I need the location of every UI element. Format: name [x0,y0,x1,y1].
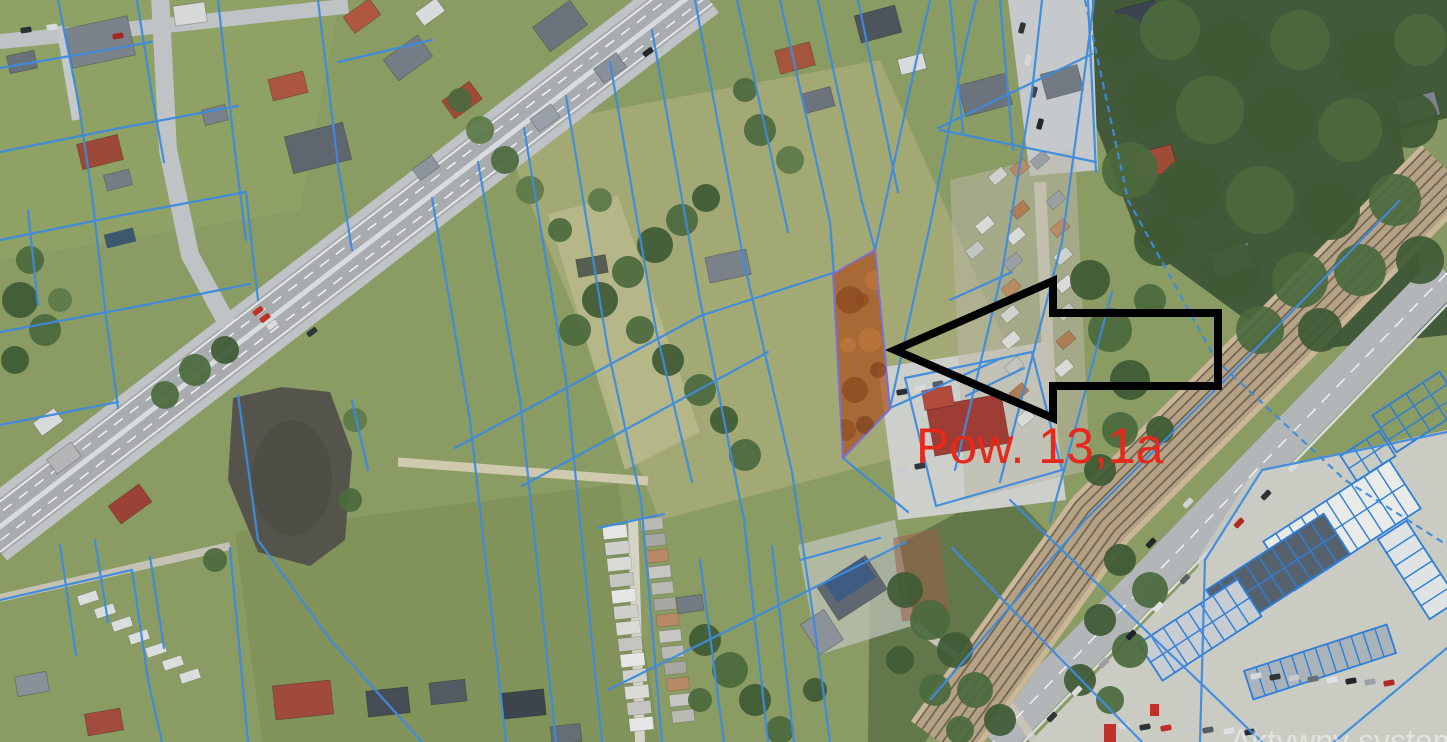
area-label: Pow. 13,1a [916,418,1164,474]
tree [776,146,804,174]
tree [886,646,914,674]
tree [612,256,644,288]
tree [48,288,72,312]
tree [984,704,1016,736]
garage [616,620,641,635]
map-imagery-layer [0,0,1447,742]
map-watermark: Aktywny system W [1230,723,1447,742]
tree [712,652,748,688]
tree [1270,10,1330,70]
building [366,687,410,717]
tree [211,336,239,364]
tree [887,572,923,608]
garage [609,572,634,587]
tree [29,314,61,346]
map-viewport[interactable]: Pow. 13,1a Aktywny system W [0,0,1447,742]
tree [688,688,712,712]
tree [626,316,654,344]
tree [466,116,494,144]
red-roof-mark [1104,724,1116,742]
tree [1336,26,1404,94]
tree [1300,180,1360,240]
tree [1084,604,1116,636]
building [676,594,704,613]
garage [618,636,643,651]
tree [733,78,757,102]
tree [1158,158,1222,222]
building [272,680,333,720]
garage [651,581,674,595]
garage [648,565,671,579]
tree [1070,260,1110,300]
garage [605,540,630,555]
tree [1140,0,1200,60]
tree [491,146,519,174]
tree [338,488,362,512]
tree [1394,14,1446,66]
tree [689,624,721,656]
garage [624,684,649,699]
tree [1298,308,1342,352]
tree [1110,360,1150,400]
tree [1176,76,1244,144]
tree [1382,92,1438,148]
building [429,679,467,705]
building [502,689,546,719]
tree [652,344,684,376]
tree [1132,572,1168,608]
tree [203,548,227,572]
tree [910,600,950,640]
garage [643,533,666,547]
garage [613,604,638,619]
tree [1102,142,1158,198]
tree [1,346,29,374]
tree [1236,306,1284,354]
garage [672,709,695,723]
tree [548,218,572,242]
tree [1334,244,1386,296]
tree [1369,174,1421,226]
tree [179,354,211,386]
tree [1226,166,1294,234]
tree [2,282,38,318]
garage [611,588,636,603]
tree [1318,98,1382,162]
garage [629,716,654,731]
garage [656,613,679,627]
tree [559,314,591,346]
garage [646,549,669,563]
tree [744,114,776,146]
tree [1104,544,1136,576]
garage [620,652,645,667]
tree [1120,70,1180,130]
garage [653,597,676,611]
tree [1200,240,1260,300]
tree [919,674,951,706]
tree [692,184,720,212]
tree [957,672,993,708]
tree [666,204,698,236]
tree [1244,84,1316,156]
garage [659,629,682,643]
tree [1094,14,1146,66]
building [173,2,207,26]
tree [739,684,771,716]
garage [666,677,689,691]
tree [516,176,544,204]
garage [627,700,652,715]
tree [16,246,44,274]
garage [607,556,632,571]
tree [1396,236,1444,284]
tree [937,632,973,668]
aerial-map[interactable]: Pow. 13,1a Aktywny system W [0,0,1447,742]
tree [151,381,179,409]
tree [448,88,472,112]
tree [1272,252,1328,308]
red-roof-mark [1150,704,1159,716]
garage [664,661,687,675]
tree [588,188,612,212]
tree [1196,16,1264,84]
